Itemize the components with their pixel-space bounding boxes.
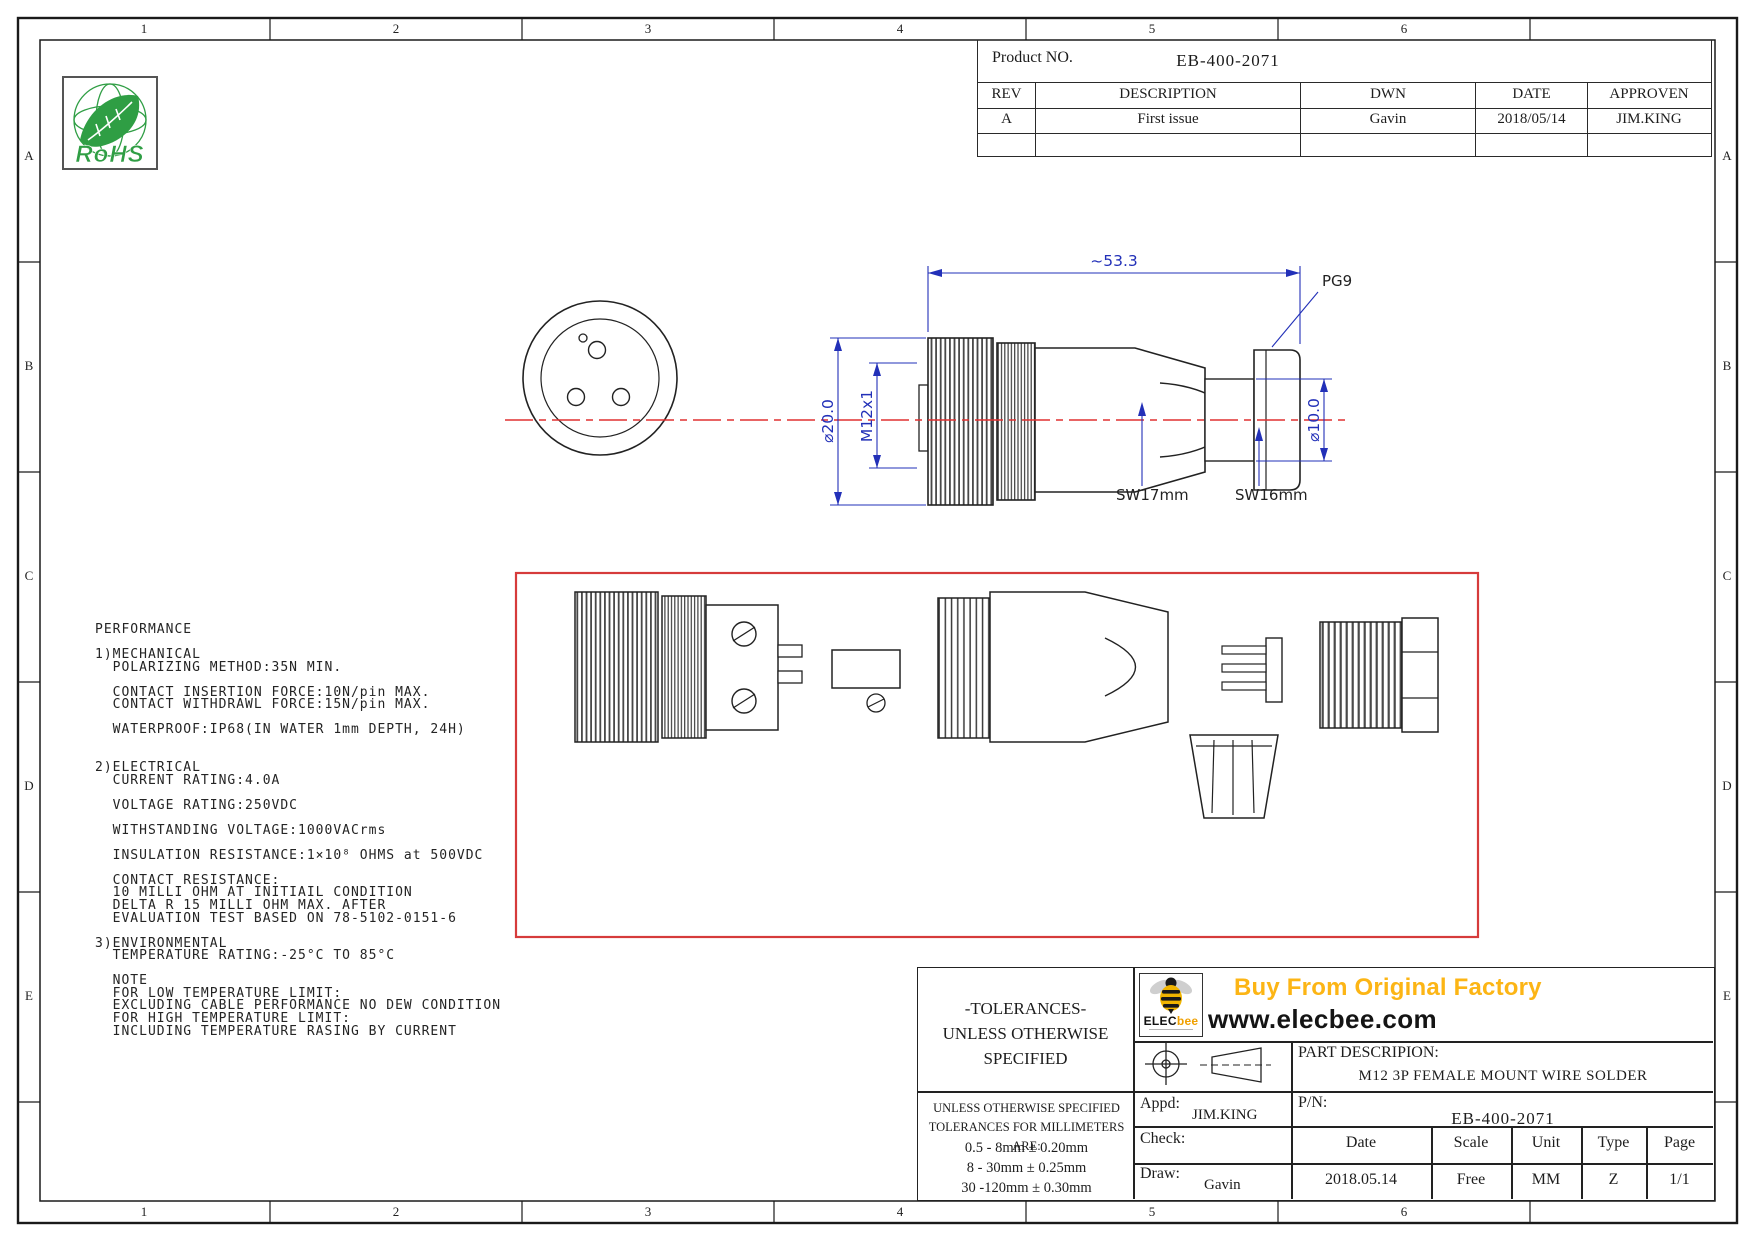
sw17-label: SW17mm [1116,486,1189,504]
frame-col-label: 4 [889,1204,911,1220]
bee-icon [1141,974,1201,1016]
logo-text-elec: ELEC [1144,1014,1177,1028]
frame-row-label: D [1716,778,1738,794]
rohs-logo: RoHS [62,76,158,170]
frame-col-label: 5 [1141,1204,1163,1220]
frame-col-label: 4 [889,21,911,37]
date-col-header: Date [1291,1134,1431,1152]
frame-col-label: 1 [133,1204,155,1220]
dwn-col-header: DWN [1301,83,1476,108]
description-col-header: DESCRIPTION [1036,83,1301,108]
draw-label: Draw: [1140,1165,1180,1183]
brand-website[interactable]: www.elecbee.com [1208,1004,1437,1035]
key-notch [579,334,587,342]
rohs-label: RoHS [75,141,144,168]
part-desc-label: PART DESCRIPION: [1298,1044,1439,1062]
page-value: 1/1 [1646,1171,1713,1189]
scale-value: Free [1431,1171,1511,1189]
frame-col-label: 2 [385,21,407,37]
date-col-header: DATE [1476,83,1588,108]
revision-header-row: REV DESCRIPTION DWN DATE APPROVEN [978,83,1711,109]
frame-col-label: 3 [637,1204,659,1220]
scale-col-header: Scale [1431,1134,1511,1152]
performance-notes: PERFORMANCE 1)MECHANICAL POLARIZING METH… [95,624,501,1038]
logo-tagline-line [1149,1029,1193,1030]
product-no-label: Product NO. [992,49,1073,67]
frame-row-label: D [18,778,40,794]
frame-row-label: B [1716,358,1738,374]
frame-col-label: 2 [385,1204,407,1220]
frame-col-label: 6 [1393,21,1415,37]
pg9-leader [1272,292,1318,347]
coupling-knurl [928,338,993,505]
body-knurl [997,343,1035,500]
side-view [919,338,1300,505]
draw-value: Gavin [1204,1177,1241,1194]
logo-text-bee: bee [1177,1014,1199,1028]
pn-value: EB-400-2071 [1293,1109,1713,1129]
type-value: Z [1581,1171,1646,1189]
exploded-parts [575,592,1438,818]
unit-col-header: Unit [1511,1134,1581,1152]
dim-thread-label: M12x1 [858,390,876,442]
revision-data-row: A First issue Gavin 2018/05/14 JIM.KING [978,109,1711,135]
elecbee-logo: ELECbee [1139,973,1203,1037]
front-view [523,301,677,455]
thread-stub [919,385,928,451]
dim-cable-dia-label: ⌀10.0 [1305,398,1323,442]
date-value: 2018/05/14 [1476,109,1588,134]
approven-value: JIM.KING [1588,109,1710,134]
description-value: First issue [1036,109,1301,134]
gland-label: PG9 [1322,272,1352,290]
appd-label: Appd: [1140,1095,1180,1113]
part-desc-value: M12 3P FEMALE MOUNT WIRE SOLDER [1293,1068,1713,1085]
frame-row-label: B [18,358,40,374]
brand-headline: Buy From Original Factory [1234,974,1542,1002]
type-col-header: Type [1581,1134,1646,1152]
date-value: 2018.05.14 [1291,1171,1431,1189]
revision-empty-row [978,134,1711,156]
drawing-sheet: ~53.3 ⌀20.0 M12x1 ⌀10.0 PG9 SW17mm SW16m… [0,0,1755,1241]
approven-col-header: APPROVEN [1588,83,1710,108]
frame-row-label: E [1716,988,1738,1004]
frame-col-label: 3 [637,21,659,37]
dwn-value: Gavin [1301,109,1476,134]
tolerances-values: 0.5 - 8mm ± 0.20mm 8 - 30mm ± 0.25mm 30 … [920,1138,1133,1198]
frame-row-label: A [1716,148,1738,164]
frame-row-label: A [18,148,40,164]
revision-table: Product NO. EB-400-2071 REV DESCRIPTION … [977,40,1712,157]
sw16-label: SW16mm [1235,486,1308,504]
frame-row-label: E [18,988,40,1004]
frame-row-label: C [18,568,40,584]
title-block: -TOLERANCES- UNLESS OTHERWISE SPECIFIED … [917,967,1715,1201]
rev-col-header: REV [978,83,1036,108]
tolerances-heading: -TOLERANCES- UNLESS OTHERWISE SPECIFIED [918,996,1133,1071]
unit-value: MM [1511,1171,1581,1189]
frame-col-label: 6 [1393,1204,1415,1220]
check-label: Check: [1140,1130,1185,1148]
frame-col-label: 5 [1141,21,1163,37]
dim-outer-dia-label: ⌀20.0 [819,399,837,443]
appd-value: JIM.KING [1192,1107,1257,1124]
frame-col-label: 1 [133,21,155,37]
page-col-header: Page [1646,1134,1713,1152]
dim-length-label: ~53.3 [1090,252,1138,270]
product-no-value: EB-400-2071 [1098,51,1358,71]
frame-row-label: C [1716,568,1738,584]
product-row: Product NO. EB-400-2071 [978,40,1711,83]
rev-value: A [978,109,1036,134]
